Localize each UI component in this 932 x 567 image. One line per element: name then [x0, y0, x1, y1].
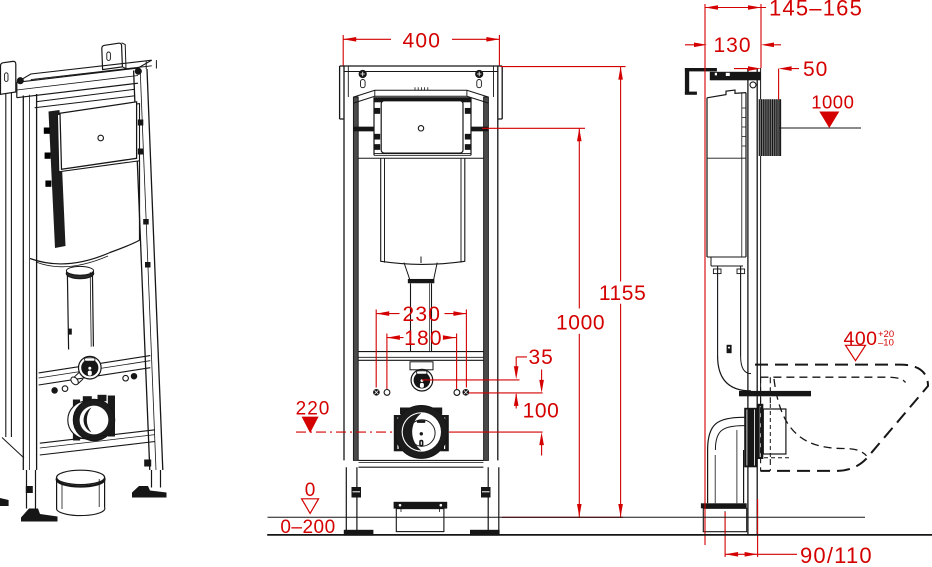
svg-text:0: 0 — [305, 480, 316, 501]
svg-text:–10: –10 — [878, 338, 894, 349]
svg-text:400: 400 — [843, 328, 877, 350]
svg-text:50: 50 — [803, 58, 828, 81]
svg-text:220: 220 — [296, 399, 331, 420]
svg-text:90/110: 90/110 — [800, 543, 873, 567]
svg-text:100: 100 — [523, 399, 560, 422]
svg-text:130: 130 — [713, 34, 751, 57]
svg-text:1000: 1000 — [556, 312, 605, 335]
svg-text:1000: 1000 — [811, 92, 854, 113]
svg-text:400: 400 — [402, 29, 441, 52]
svg-text:35: 35 — [529, 346, 554, 369]
svg-text:180: 180 — [404, 327, 443, 350]
svg-text:145–165: 145–165 — [769, 0, 863, 20]
svg-text:1155: 1155 — [599, 282, 647, 305]
svg-text:230: 230 — [402, 303, 441, 326]
